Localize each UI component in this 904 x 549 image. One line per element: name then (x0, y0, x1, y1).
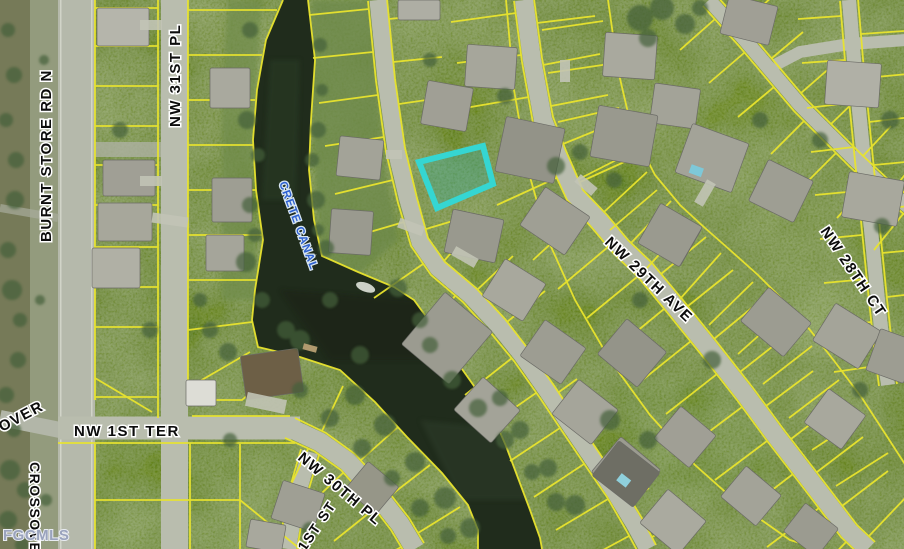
svg-text:FGCMLS: FGCMLS (3, 527, 69, 544)
svg-text:NW 31ST PL: NW 31ST PL (167, 24, 184, 127)
svg-text:NW 1ST TER: NW 1ST TER (74, 423, 180, 440)
svg-text:BURNT STORE RD N: BURNT STORE RD N (38, 69, 55, 242)
